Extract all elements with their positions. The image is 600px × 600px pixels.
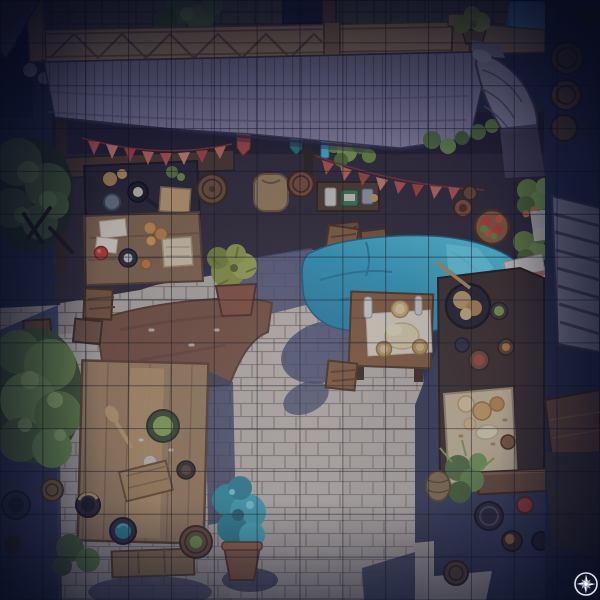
lighting-vignette: [0, 0, 600, 600]
battlemap-canvas: [0, 0, 600, 600]
compass-rose-icon: [575, 573, 597, 595]
left-shade: [0, 0, 100, 600]
compass-center: [584, 582, 588, 586]
battlemap-image: [0, 0, 600, 600]
right-shade: [500, 0, 600, 600]
